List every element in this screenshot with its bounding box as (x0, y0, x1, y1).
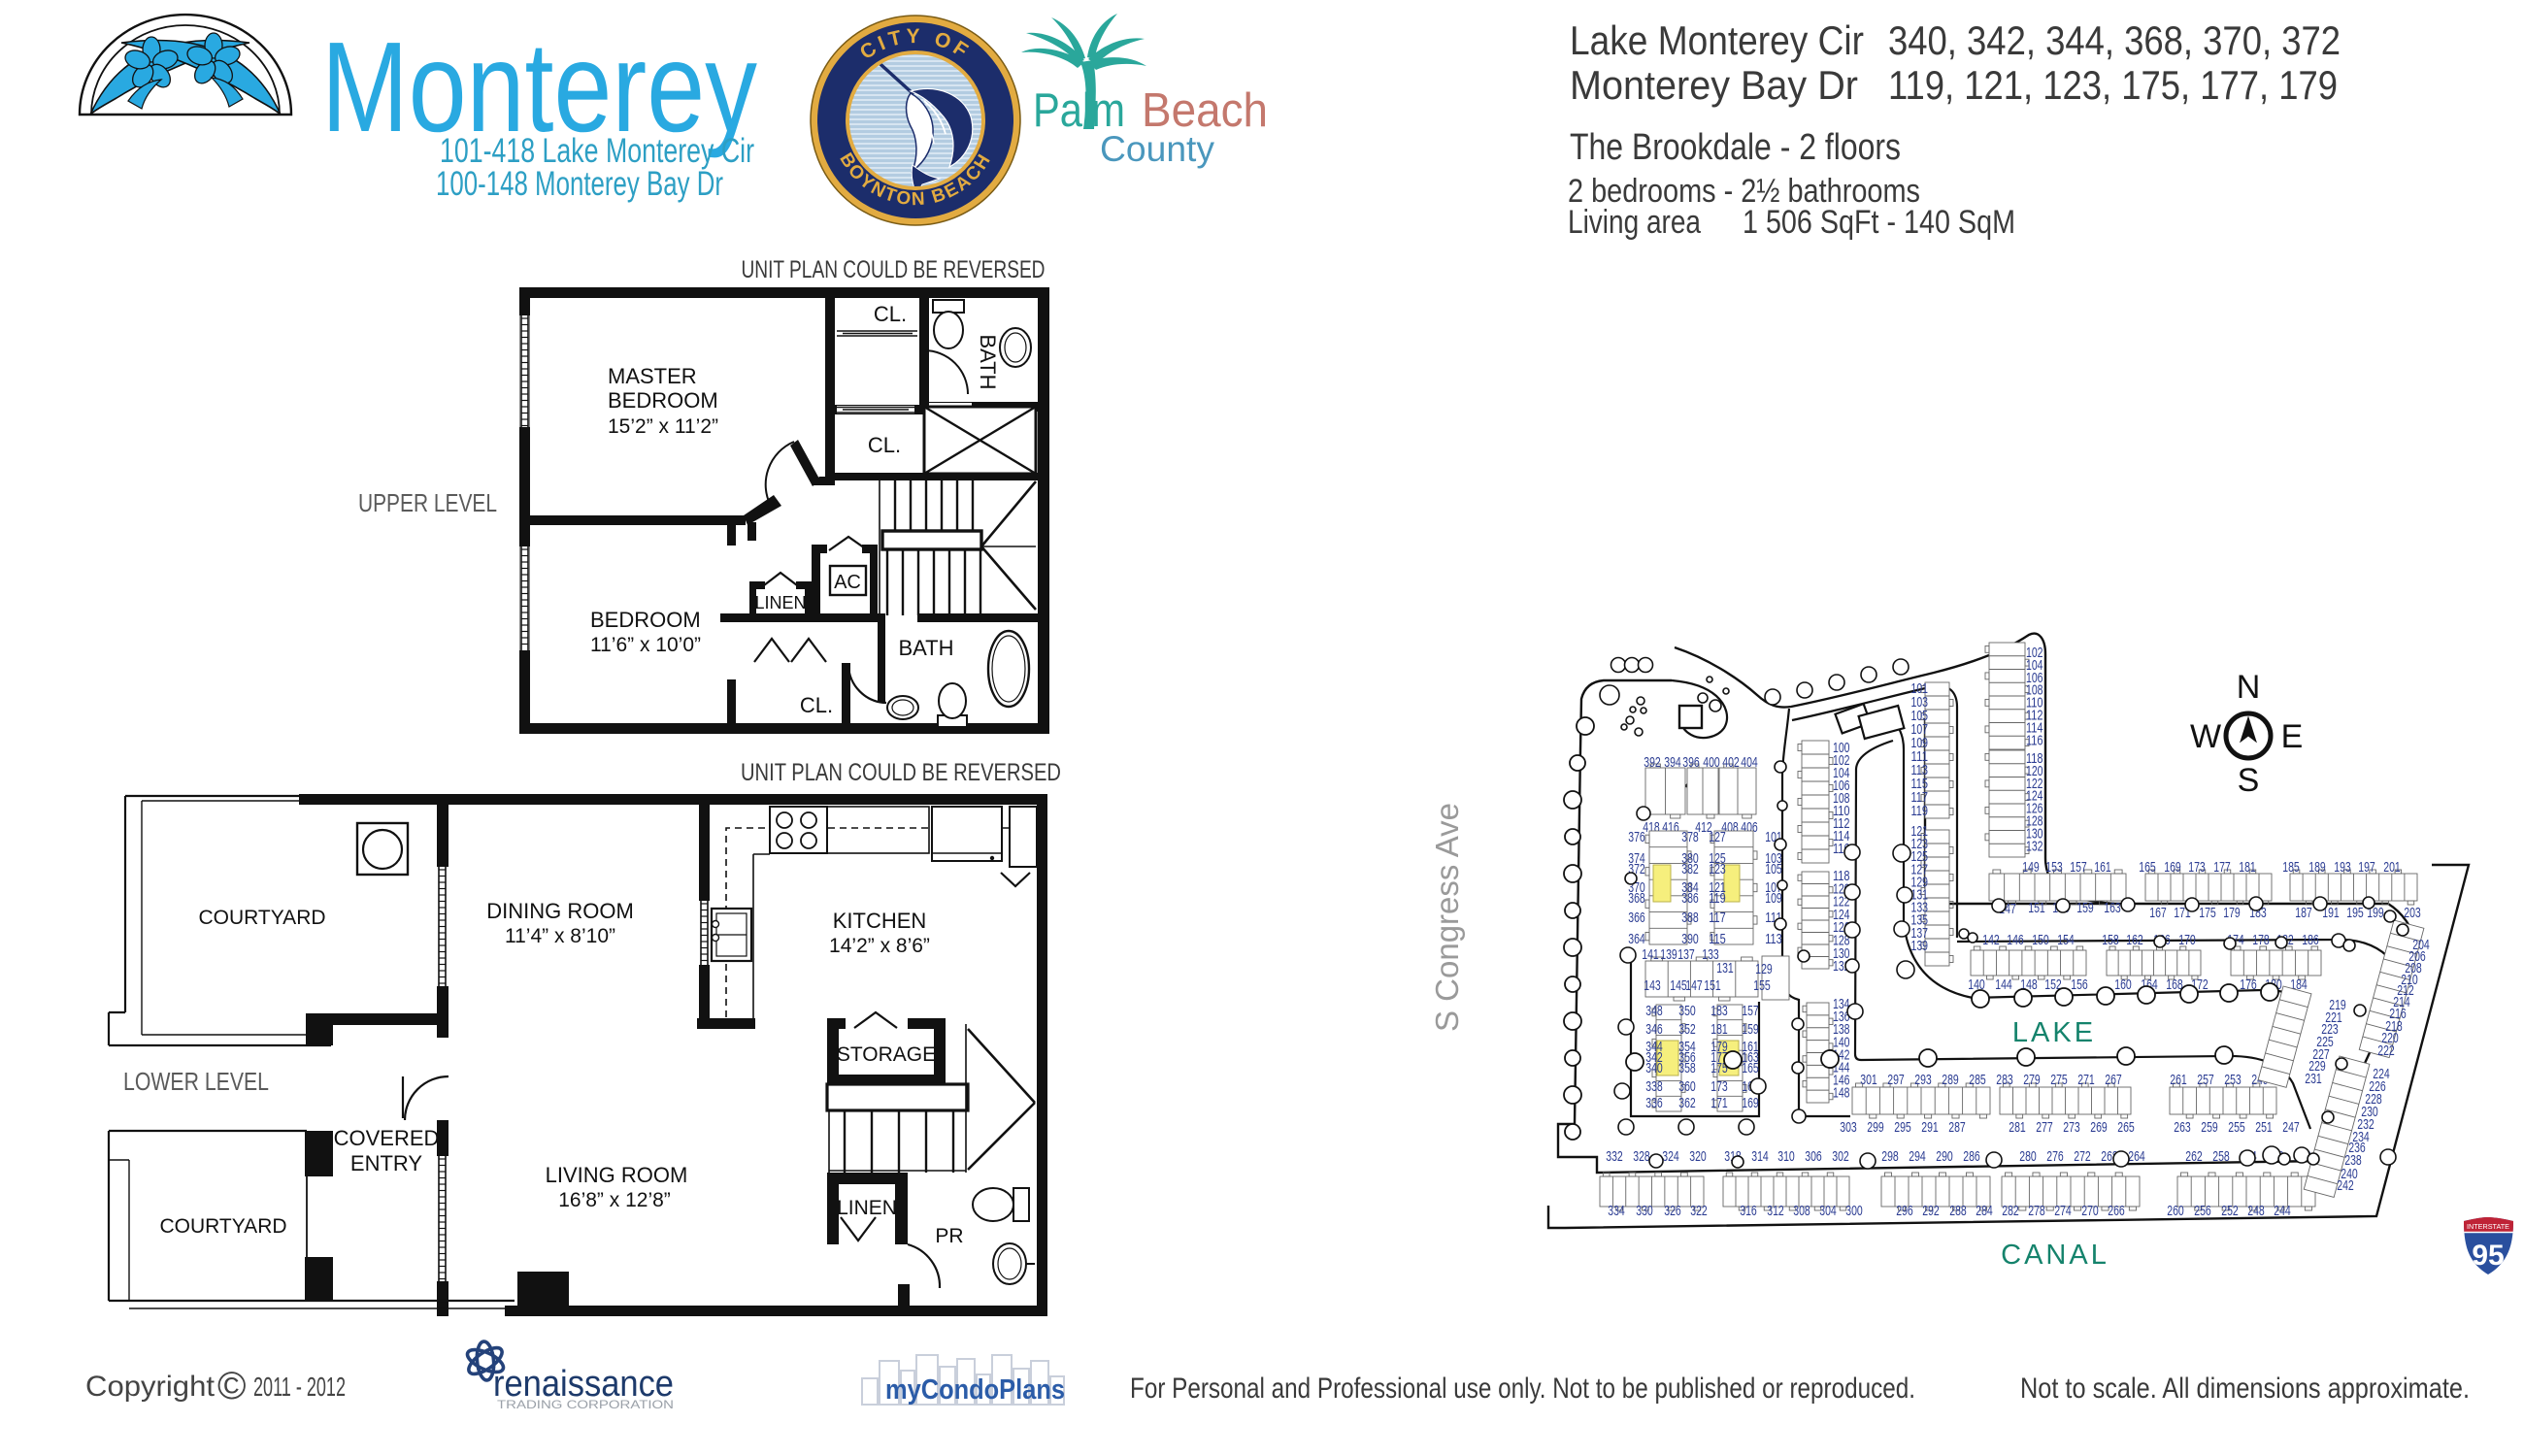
svg-text:123: 123 (1709, 861, 1726, 877)
svg-text:S: S (2238, 762, 2260, 799)
svg-text:156: 156 (2071, 976, 2088, 993)
svg-text:350: 350 (1678, 1003, 1696, 1019)
svg-text:279: 279 (2023, 1072, 2041, 1088)
svg-text:296: 296 (1896, 1203, 1913, 1219)
svg-text:306: 306 (1805, 1148, 1822, 1165)
svg-text:14’2” x 8’6”: 14’2” x 8’6” (829, 935, 930, 957)
svg-text:Lake Monterey Cir: Lake Monterey Cir (1570, 17, 1864, 63)
svg-text:264: 264 (2128, 1148, 2145, 1165)
svg-text:280: 280 (2019, 1148, 2037, 1165)
svg-text:251: 251 (2255, 1119, 2273, 1136)
svg-text:312: 312 (1767, 1203, 1784, 1219)
svg-text:326: 326 (1664, 1203, 1681, 1219)
svg-text:15’2” x 11’2”: 15’2” x 11’2” (608, 415, 718, 438)
svg-text:302: 302 (1832, 1148, 1849, 1165)
svg-text:262: 262 (2185, 1148, 2203, 1165)
svg-text:116: 116 (2026, 732, 2043, 748)
svg-text:105: 105 (1765, 861, 1782, 877)
svg-text:1 506 SqFt - 140 SqM: 1 506 SqFt - 140 SqM (1743, 204, 2015, 241)
svg-text:183: 183 (1710, 1003, 1728, 1019)
svg-text:186: 186 (2302, 932, 2319, 948)
svg-text:LAKE: LAKE (2012, 1017, 2096, 1048)
svg-text:146: 146 (2007, 932, 2024, 948)
svg-text:382: 382 (1681, 861, 1699, 877)
svg-text:BEDROOM: BEDROOM (590, 608, 701, 632)
svg-text:334: 334 (1608, 1203, 1625, 1219)
svg-text:242: 242 (2337, 1177, 2354, 1194)
svg-text:276: 276 (2046, 1148, 2064, 1165)
svg-text:UNIT PLAN COULD BE REVERSED: UNIT PLAN COULD BE REVERSED (742, 256, 1046, 283)
svg-text:271: 271 (2077, 1072, 2095, 1088)
svg-text:143: 143 (1644, 977, 1661, 994)
svg-text:402: 402 (1722, 754, 1740, 771)
svg-text:S Congress Ave: S Congress Ave (1429, 803, 1465, 1032)
svg-text:W: W (2190, 718, 2221, 755)
svg-text:131: 131 (1716, 960, 1734, 976)
svg-text:222: 222 (2377, 1042, 2395, 1059)
svg-text:16’8” x 12’8”: 16’8” x 12’8” (558, 1189, 671, 1211)
svg-text:171: 171 (1710, 1095, 1728, 1111)
svg-text:328: 328 (1633, 1148, 1650, 1165)
svg-text:195: 195 (2346, 905, 2364, 921)
svg-text:BATH: BATH (976, 334, 1000, 389)
svg-text:CL.: CL. (868, 433, 901, 457)
svg-text:127: 127 (1709, 829, 1726, 845)
svg-text:260: 260 (2167, 1203, 2184, 1219)
svg-text:161: 161 (2094, 859, 2111, 876)
svg-text:151: 151 (2028, 900, 2045, 916)
svg-text:DINING ROOM: DINING ROOM (486, 899, 634, 923)
svg-text:360: 360 (1678, 1078, 1696, 1095)
svg-text:300: 300 (1845, 1203, 1863, 1219)
svg-text:The Brookdale - 2 floors: The Brookdale - 2 floors (1570, 127, 1901, 168)
svg-text:139: 139 (1660, 946, 1677, 963)
svg-text:119: 119 (1911, 803, 1929, 819)
svg-text:117: 117 (1709, 910, 1726, 926)
svg-text:159: 159 (1742, 1021, 1759, 1038)
svg-text:201: 201 (2383, 859, 2401, 876)
svg-text:149: 149 (2022, 859, 2040, 876)
svg-text:162: 162 (2126, 932, 2143, 948)
svg-text:189: 189 (2308, 859, 2326, 876)
svg-text:177: 177 (2213, 859, 2231, 876)
svg-text:275: 275 (2050, 1072, 2068, 1088)
svg-text:404: 404 (1741, 754, 1758, 771)
svg-text:181: 181 (1710, 1021, 1728, 1038)
svg-text:368: 368 (1628, 890, 1645, 907)
svg-text:348: 348 (1645, 1003, 1663, 1019)
svg-text:358: 358 (1678, 1060, 1696, 1076)
svg-text:289: 289 (1942, 1072, 1959, 1088)
svg-text:BATH: BATH (898, 636, 953, 660)
svg-text:316: 316 (1740, 1203, 1757, 1219)
svg-text:291: 291 (1921, 1119, 1939, 1136)
svg-text:314: 314 (1751, 1148, 1769, 1165)
svg-text:197: 197 (2358, 859, 2375, 876)
svg-text:INTERSTATE: INTERSTATE (2467, 1224, 2509, 1231)
svg-text:145: 145 (1670, 977, 1687, 994)
svg-text:147: 147 (1685, 977, 1703, 994)
svg-text:175: 175 (2199, 905, 2216, 921)
svg-text:259: 259 (2201, 1119, 2218, 1136)
svg-text:364: 364 (1628, 931, 1645, 947)
svg-text:11’4” x 8’10”: 11’4” x 8’10” (505, 925, 615, 947)
svg-text:181: 181 (2239, 859, 2256, 876)
svg-text:282: 282 (2002, 1203, 2019, 1219)
svg-text:119: 119 (1709, 890, 1726, 907)
svg-text:For Personal and Professional: For Personal and Professional use only. … (1130, 1373, 1915, 1405)
svg-text:148: 148 (1833, 1085, 1850, 1102)
svg-text:MASTER: MASTER (608, 364, 697, 388)
svg-text:160: 160 (2114, 976, 2132, 993)
svg-text:248: 248 (2247, 1203, 2265, 1219)
svg-text:388: 388 (1681, 910, 1699, 926)
svg-text:139: 139 (1911, 938, 1929, 954)
svg-text:ENTRY: ENTRY (350, 1151, 422, 1175)
svg-text:270: 270 (2081, 1203, 2099, 1219)
svg-text:E: E (2281, 718, 2304, 755)
svg-text:285: 285 (1969, 1072, 1986, 1088)
svg-text:320: 320 (1689, 1148, 1707, 1165)
svg-text:LINEN: LINEN (754, 593, 806, 612)
svg-text:310: 310 (1777, 1148, 1795, 1165)
svg-text:167: 167 (2149, 905, 2167, 921)
svg-text:340, 342, 344, 368, 370, 372: 340, 342, 344, 368, 370, 372 (1888, 17, 2341, 63)
svg-text:170: 170 (2178, 932, 2196, 948)
svg-text:157: 157 (2070, 859, 2087, 876)
svg-text:338: 338 (1645, 1078, 1663, 1095)
svg-text:2011 - 2012: 2011 - 2012 (253, 1372, 346, 1402)
svg-text:257: 257 (2197, 1072, 2214, 1088)
svg-text:324: 324 (1662, 1148, 1679, 1165)
svg-text:115: 115 (1709, 931, 1726, 947)
svg-text:252: 252 (2221, 1203, 2239, 1219)
svg-text:N: N (2237, 669, 2261, 706)
svg-text:113: 113 (1765, 931, 1782, 947)
svg-text:COURTYARD: COURTYARD (198, 907, 325, 929)
svg-text:378: 378 (1681, 829, 1699, 845)
svg-text:286: 286 (1963, 1148, 1980, 1165)
svg-text:165: 165 (2139, 859, 2156, 876)
svg-text:244: 244 (2274, 1203, 2291, 1219)
svg-text:137: 137 (1677, 946, 1695, 963)
svg-text:340: 340 (1645, 1060, 1663, 1076)
svg-text:281: 281 (2009, 1119, 2026, 1136)
svg-text:258: 258 (2212, 1148, 2230, 1165)
svg-text:153: 153 (2045, 859, 2063, 876)
svg-text:292: 292 (1922, 1203, 1940, 1219)
svg-text:158: 158 (2102, 932, 2119, 948)
svg-text:386: 386 (1681, 890, 1699, 907)
svg-text:154: 154 (2057, 932, 2075, 948)
svg-text:CL.: CL. (874, 302, 907, 326)
svg-text:141: 141 (1642, 946, 1659, 963)
svg-text:163: 163 (2104, 900, 2121, 916)
svg-text:308: 308 (1793, 1203, 1810, 1219)
svg-text:11’6” x 10’0”: 11’6” x 10’0” (590, 634, 701, 656)
svg-text:173: 173 (2188, 859, 2206, 876)
svg-text:173: 173 (1710, 1078, 1728, 1095)
svg-text:231: 231 (2305, 1071, 2322, 1087)
svg-text:165: 165 (1742, 1060, 1759, 1076)
svg-text:Copyright: Copyright (85, 1371, 216, 1403)
svg-text:336: 336 (1645, 1095, 1663, 1111)
svg-text:Not to scale. All dimensions: Not to scale. All dimensions approximate… (2020, 1373, 2470, 1405)
svg-text:392: 392 (1644, 754, 1661, 771)
svg-text:256: 256 (2194, 1203, 2211, 1219)
svg-text:UNIT PLAN COULD BE REVERSED: UNIT PLAN COULD BE REVERSED (741, 759, 1061, 786)
svg-text:322: 322 (1690, 1203, 1708, 1219)
svg-text:AC: AC (834, 572, 861, 593)
svg-text:298: 298 (1881, 1148, 1899, 1165)
svg-text:BEDROOM: BEDROOM (608, 388, 718, 413)
svg-text:330: 330 (1636, 1203, 1653, 1219)
svg-text:KITCHEN: KITCHEN (833, 909, 927, 933)
svg-text:352: 352 (1678, 1021, 1696, 1038)
svg-text:TRADING CORPORATION: TRADING CORPORATION (497, 1398, 674, 1411)
svg-text:119, 121, 123, 175, 177, 179: 119, 121, 123, 175, 177, 179 (1888, 62, 2338, 108)
svg-text:274: 274 (2054, 1203, 2072, 1219)
svg-text:287: 287 (1948, 1119, 1966, 1136)
svg-text:STORAGE: STORAGE (837, 1043, 936, 1066)
svg-text:LIVING ROOM: LIVING ROOM (546, 1163, 688, 1187)
svg-text:LINEN: LINEN (837, 1197, 897, 1219)
svg-text:151: 151 (1704, 977, 1721, 994)
svg-text:297: 297 (1887, 1072, 1905, 1088)
svg-text:362: 362 (1678, 1095, 1696, 1111)
svg-text:150: 150 (2032, 932, 2049, 948)
svg-text:LOWER LEVEL: LOWER LEVEL (123, 1067, 269, 1096)
svg-text:COVERED: COVERED (334, 1126, 440, 1150)
svg-text:159: 159 (2076, 900, 2094, 916)
svg-text:myCondoPlans: myCondoPlans (885, 1374, 1065, 1406)
svg-text:UPPER LEVEL: UPPER LEVEL (358, 488, 497, 517)
svg-text:294: 294 (1909, 1148, 1926, 1165)
svg-text:277: 277 (2036, 1119, 2053, 1136)
svg-text:Monterey Bay Dr: Monterey Bay Dr (1570, 62, 1858, 108)
svg-text:193: 193 (2334, 859, 2351, 876)
svg-text:261: 261 (2170, 1072, 2187, 1088)
svg-text:255: 255 (2228, 1119, 2245, 1136)
svg-text:394: 394 (1664, 754, 1681, 771)
svg-text:County: County (1100, 129, 1215, 169)
svg-text:247: 247 (2282, 1119, 2300, 1136)
svg-text:269: 269 (2090, 1119, 2108, 1136)
svg-text:265: 265 (2117, 1119, 2135, 1136)
svg-text:142: 142 (1982, 932, 2000, 948)
svg-text:304: 304 (1819, 1203, 1837, 1219)
svg-text:266: 266 (2108, 1203, 2125, 1219)
svg-text:PR: PR (935, 1225, 963, 1247)
svg-text:179: 179 (2223, 905, 2241, 921)
svg-text:157: 157 (1742, 1003, 1759, 1019)
svg-text:396: 396 (1682, 754, 1700, 771)
svg-text:185: 185 (2282, 859, 2300, 876)
svg-text:CANAL: CANAL (2001, 1240, 2109, 1271)
svg-text:272: 272 (2074, 1148, 2091, 1165)
svg-text:176: 176 (2240, 976, 2257, 993)
svg-text:301: 301 (1860, 1072, 1877, 1088)
svg-text:284: 284 (1976, 1203, 1993, 1219)
svg-text:299: 299 (1867, 1119, 1884, 1136)
svg-text:COURTYARD: COURTYARD (159, 1215, 286, 1238)
svg-text:132: 132 (2026, 838, 2043, 854)
svg-text:109: 109 (1765, 890, 1782, 907)
svg-text:267: 267 (2105, 1072, 2122, 1088)
svg-text:263: 263 (2174, 1119, 2191, 1136)
svg-text:203: 203 (2404, 905, 2421, 921)
svg-text:169: 169 (1742, 1095, 1759, 1111)
svg-text:144: 144 (1995, 976, 2012, 993)
svg-text:346: 346 (1645, 1021, 1663, 1038)
svg-text:273: 273 (2063, 1119, 2080, 1136)
svg-text:295: 295 (1894, 1119, 1911, 1136)
svg-text:293: 293 (1914, 1072, 1932, 1088)
svg-text:187: 187 (2295, 905, 2312, 921)
svg-text:©: © (217, 1365, 246, 1407)
svg-text:278: 278 (2028, 1203, 2045, 1219)
svg-text:303: 303 (1840, 1119, 1857, 1136)
svg-text:283: 283 (1996, 1072, 2013, 1088)
svg-text:390: 390 (1681, 931, 1699, 947)
svg-text:CL.: CL. (800, 693, 833, 717)
svg-text:288: 288 (1949, 1203, 1967, 1219)
svg-text:129: 129 (1755, 961, 1773, 977)
svg-text:155: 155 (1753, 977, 1771, 994)
svg-text:376: 376 (1628, 829, 1645, 845)
svg-text:366: 366 (1628, 910, 1645, 926)
svg-text:169: 169 (2164, 859, 2181, 876)
svg-text:Living area: Living area (1568, 204, 1701, 241)
svg-text:290: 290 (1936, 1148, 1953, 1165)
svg-text:178: 178 (2252, 932, 2270, 948)
svg-text:332: 332 (1606, 1148, 1623, 1165)
svg-text:253: 253 (2224, 1072, 2242, 1088)
svg-text:100-148 Monterey Bay Dr: 100-148 Monterey Bay Dr (436, 165, 723, 203)
svg-text:400: 400 (1703, 754, 1720, 771)
svg-text:95: 95 (2472, 1240, 2504, 1272)
